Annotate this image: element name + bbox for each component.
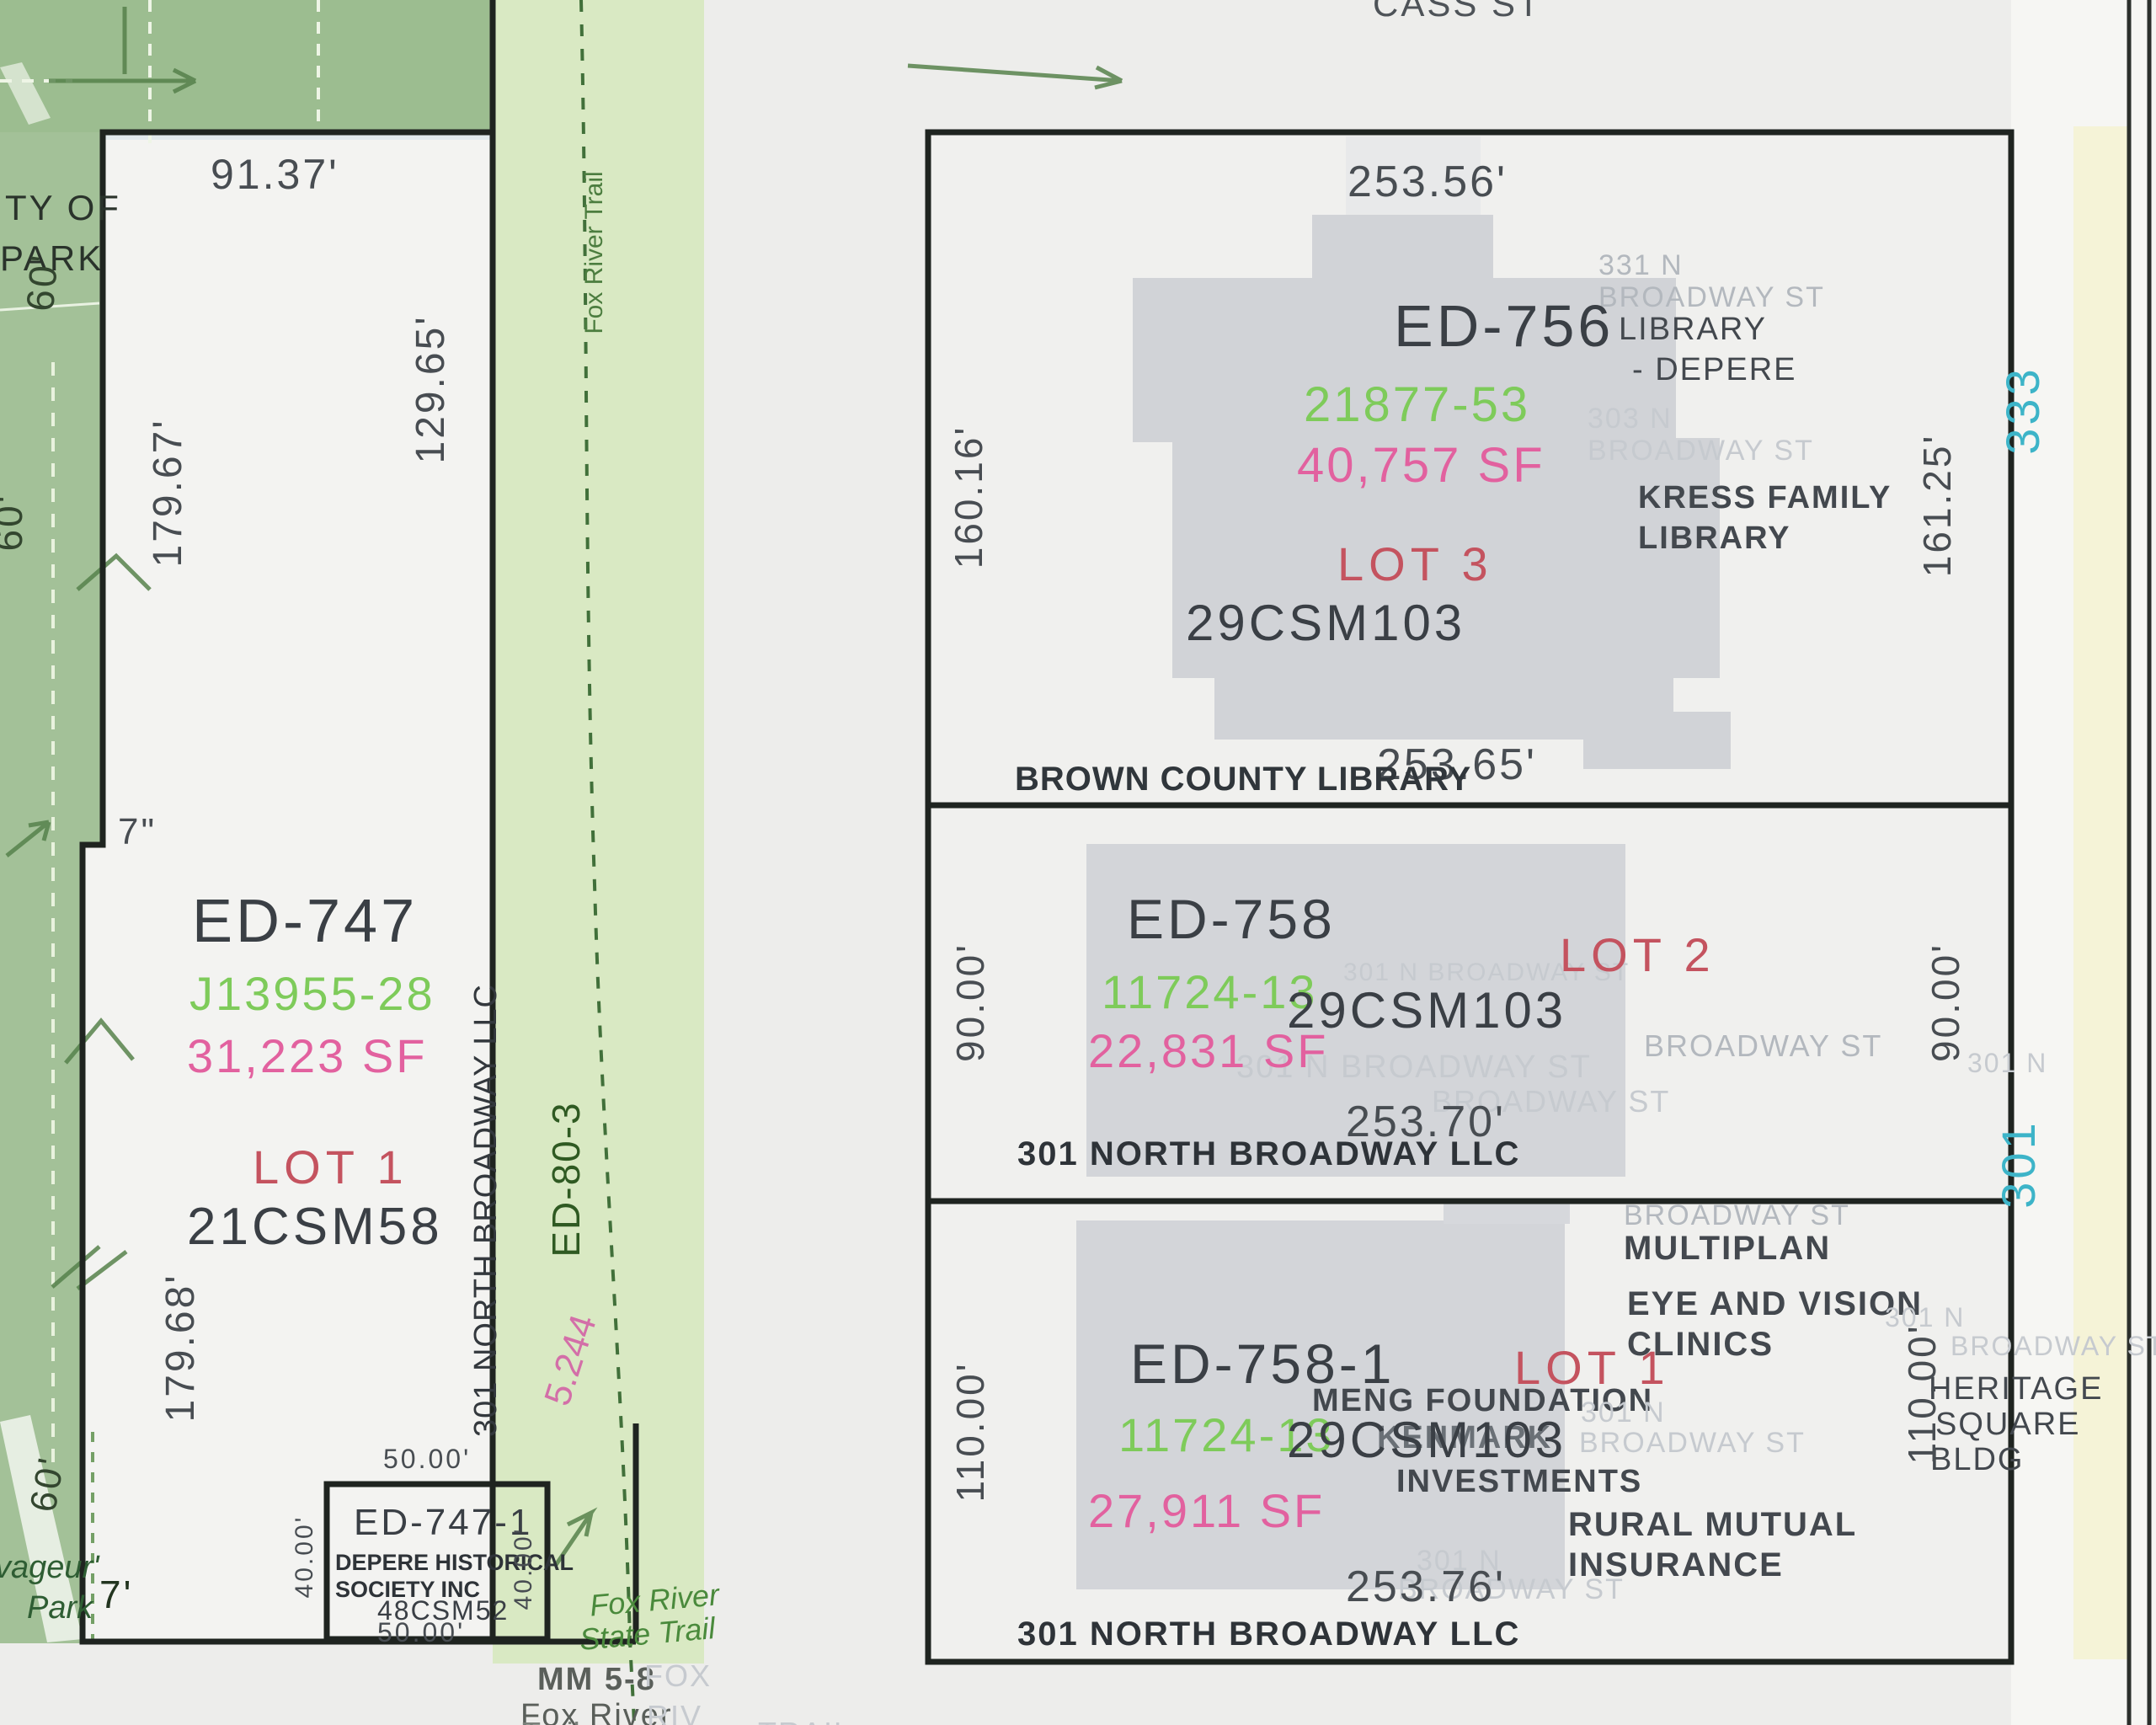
dim-60-bottom: 60' — [25, 1454, 72, 1515]
dim-50-top: 50.00' — [383, 1445, 471, 1472]
parcel-id-ed80-3: ED-80-3 — [547, 1101, 585, 1257]
library-building-5 — [1583, 712, 1731, 769]
dim-16125: 161.25' — [1918, 434, 1956, 577]
doc-number-ed758: 11724-13 — [1102, 969, 1318, 1016]
tenant-multiplan: MULTIPLAN — [1624, 1231, 1831, 1265]
address-333: 333 — [1999, 366, 2047, 454]
dim-jog-7ft: 7' — [99, 1575, 133, 1614]
dim-60-mid: 60' — [0, 494, 28, 552]
ghost-331n: 331 N — [1598, 251, 1684, 280]
lot-label-lot1-left: LOT 1 — [253, 1144, 408, 1191]
park-label-voyageur-1: vageur' — [0, 1551, 99, 1583]
trail-marker-mm-5-8: MM 5-8 — [537, 1664, 656, 1696]
street-label-cass: CASS ST — [1373, 0, 1542, 22]
dim-jog-7in: 7" — [118, 814, 157, 851]
ghost-303n-broadway: BROADWAY ST — [1588, 436, 1814, 465]
park-area-top — [0, 0, 493, 132]
ghost-lot1-5: BROADWAY ST — [1951, 1332, 2156, 1359]
parcel-id-ed747-1: ED-747-1 — [354, 1504, 532, 1541]
ghost-303n: 303 N — [1588, 404, 1673, 433]
area-sf-ed747: 31,223 SF — [187, 1033, 427, 1080]
parcel-id-ed758: ED-758 — [1127, 891, 1336, 947]
trail-ghost-fox: FOX — [644, 1661, 712, 1691]
tenant-heritage-square: SQUARE — [1935, 1408, 2080, 1440]
ghost-331n-broadway: BROADWAY ST — [1598, 283, 1825, 312]
parcel-ed747-fill2 — [83, 845, 103, 1642]
dim-60-top: 60' — [20, 252, 64, 313]
lot1-building-arm — [1444, 1202, 1570, 1224]
ghost-lot1-3: BROADWAY ST — [1579, 1429, 1806, 1457]
tenant-heritage-bldg: BLDG — [1930, 1444, 2024, 1476]
csm-ed747: 21CSM58 — [187, 1201, 443, 1253]
dim-17967: 179.67' — [148, 419, 189, 568]
parcel-id-ed756: ED-756 — [1394, 296, 1614, 355]
dim-25356: 253.56' — [1347, 160, 1508, 204]
park-label-voyageur-2: Park — [27, 1592, 93, 1624]
doc-number-ed756: 21877-53 — [1304, 381, 1530, 430]
area-sf-ed758: 22,831 SF — [1088, 1028, 1328, 1075]
lot-label-lot3: LOT 3 — [1337, 541, 1493, 588]
tenant-rural-insurance: INSURANCE — [1568, 1548, 1784, 1582]
address-301: 301 — [1995, 1119, 2042, 1208]
trail-ghost-riv: RIV — [647, 1701, 702, 1725]
park-strip-left-lower — [0, 845, 83, 1643]
trail-label-fox-river-trail: Fox River Trail — [582, 171, 607, 334]
ghost-lot2-2: BROADWAY ST — [1644, 1031, 1882, 1061]
csm-lot2: 29CSM103 — [1287, 985, 1566, 1036]
dim-9137: 91.37' — [211, 153, 339, 195]
trail-cutoff-ghost: TRAIL — [758, 1718, 852, 1725]
dim-16016: 160.16' — [949, 425, 988, 569]
doc-number-ed747: J13955-28 — [189, 970, 435, 1017]
dim-40-left: 40.00' — [292, 1515, 318, 1599]
dim-90-right: 90.00' — [1926, 943, 1965, 1062]
area-sf-ed756: 40,757 SF — [1297, 441, 1545, 490]
ghost-lot1-2: 301 N — [1581, 1398, 1666, 1427]
tenant-rural-mutual: RURAL MUTUAL — [1568, 1508, 1857, 1541]
tenant-kress-library: LIBRARY — [1638, 522, 1790, 554]
tenant-library: LIBRARY — [1619, 313, 1767, 345]
lot-label-lot2: LOT 2 — [1560, 932, 1716, 979]
dim-110-left: 110.00' — [951, 1361, 990, 1502]
owner-301-north-broadway-bottom: 301 NORTH BROADWAY LLC — [1017, 1617, 1520, 1651]
dim-40-right: 40.00' — [511, 1527, 536, 1610]
tenant-library-depere: - DEPERE — [1632, 354, 1796, 386]
dim-50-bottom: 50.00' — [377, 1619, 465, 1646]
scan-fringe — [103, 132, 493, 140]
dim-25376: 253.76' — [1346, 1565, 1506, 1609]
dim-17968: 179.68' — [161, 1274, 201, 1423]
owner-brown-county-library: BROWN COUNTY LIBRARY — [1015, 762, 1471, 796]
library-building-1 — [1312, 215, 1493, 282]
road-yellow-strip — [2073, 126, 2131, 1659]
ghost-lot2-5: 301 N — [1967, 1049, 2047, 1076]
park-label-city-1: TY OF — [5, 190, 121, 226]
tenant-eye-and-vision: EYE AND VISION — [1627, 1287, 1923, 1321]
dim-90-left: 90.00' — [951, 943, 990, 1062]
dim-12965: 129.65' — [411, 315, 451, 464]
owner-vertical-301-north-broadway: 301 NORTH BROADWAY LLC — [470, 984, 502, 1437]
tenant-heritage: HERITAGE — [1929, 1373, 2103, 1405]
owner-depere-historical-1: DEPERE HISTORICAL — [335, 1551, 574, 1574]
owner-301-north-broadway-mid: 301 NORTH BROADWAY LLC — [1017, 1137, 1520, 1171]
ghost-lot1-1: BROADWAY ST — [1624, 1201, 1850, 1230]
csm-lot1: 29CSM103 — [1287, 1415, 1566, 1466]
tenant-investments: INVESTMENTS — [1396, 1466, 1642, 1498]
dim-110-right: 110.00' — [1903, 1323, 1941, 1464]
trail-cutoff-text: Trail — [522, 1718, 580, 1725]
map-canvas[interactable]: CASS ST TY OF PARK vageur' Park 91.37' 1… — [0, 0, 2156, 1725]
csm-lot3: 29CSM103 — [1186, 598, 1465, 649]
parcel-id-ed747: ED-747 — [192, 891, 418, 952]
area-sf-ed758-1: 27,911 SF — [1088, 1487, 1325, 1535]
tenant-kress-family: KRESS FAMILY — [1638, 482, 1892, 514]
